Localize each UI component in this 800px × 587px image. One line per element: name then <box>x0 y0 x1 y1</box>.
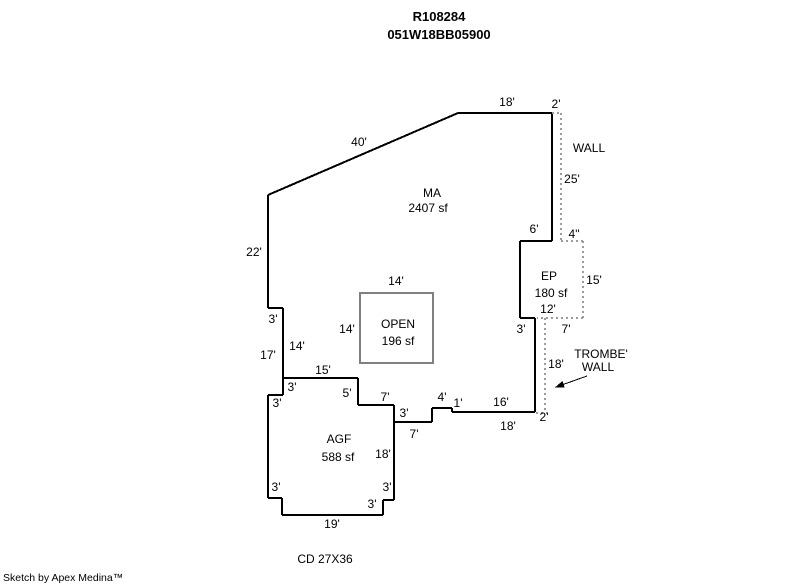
annotation-trombe-wall-line1: TROMBE' <box>574 348 628 360</box>
area-sqft-ma: 2407 sf <box>408 202 447 214</box>
pointer-arrow-line <box>556 376 587 387</box>
annotation-trombe-wall-line2: WALL <box>582 361 614 373</box>
outline-line <box>268 113 458 195</box>
dimension-label: 3' <box>269 313 278 325</box>
area-sqft-ep: 180 sf <box>535 287 568 299</box>
dimension-label: 3' <box>383 481 392 493</box>
dimension-label: 5' <box>343 387 352 399</box>
dimension-label: 1' <box>454 397 463 409</box>
dimension-label: 2' <box>552 98 561 110</box>
area-sqft-agf: 588 sf <box>322 451 355 463</box>
dimension-label: 15' <box>315 364 331 376</box>
dimension-label: 18' <box>375 448 391 460</box>
area-label-ma: MA <box>423 187 441 199</box>
dimension-label: 25' <box>564 173 580 185</box>
dimension-label: 15' <box>586 274 602 286</box>
dimension-label: 3' <box>288 381 297 393</box>
dimension-label: 22' <box>246 246 262 258</box>
trombe-pointer-arrow <box>556 376 587 387</box>
dimension-label: 7' <box>381 391 390 403</box>
dimension-label: 7' <box>410 428 419 440</box>
dimension-label: 6' <box>530 223 539 235</box>
area-label-ep: EP <box>541 270 557 282</box>
dimension-label: 18' <box>499 96 515 108</box>
sketch-page: R108284 051W18BB05900 18'2'40'WALL25'MA2… <box>0 0 800 587</box>
solid-outline-group <box>268 113 552 515</box>
dimension-label: 18' <box>548 358 564 370</box>
area-label-open: OPEN <box>381 318 415 330</box>
dimension-label: 14' <box>388 275 404 287</box>
area-label-agf: AGF <box>327 433 352 445</box>
dimension-label: 16' <box>493 396 509 408</box>
dimension-label: 3' <box>517 323 526 335</box>
sketch-attribution: Sketch by Apex Medina™ <box>3 572 123 584</box>
dimension-label: 4' <box>438 391 447 403</box>
dimension-label: 3' <box>273 397 282 409</box>
dimension-label: 14' <box>289 340 305 352</box>
annotation-cd-size: CD 27X36 <box>297 553 352 565</box>
sketch-canvas <box>0 0 800 587</box>
dimension-label: 3' <box>400 407 409 419</box>
dimension-label: 19' <box>324 518 340 530</box>
annotation-wall: WALL <box>573 142 605 154</box>
dimension-label: 12' <box>540 303 556 315</box>
dimension-label: 17' <box>260 349 276 361</box>
dimension-label: 2' <box>540 411 549 423</box>
dimension-label: 14' <box>339 323 355 335</box>
dimension-label: 3' <box>272 481 281 493</box>
dimension-label: 18' <box>500 420 516 432</box>
dimension-label: 7' <box>562 323 571 335</box>
dimension-label: 40' <box>351 136 367 148</box>
dimension-label: 3' <box>368 498 377 510</box>
area-sqft-open: 196 sf <box>382 335 415 347</box>
dimension-label: 4" <box>569 228 580 240</box>
